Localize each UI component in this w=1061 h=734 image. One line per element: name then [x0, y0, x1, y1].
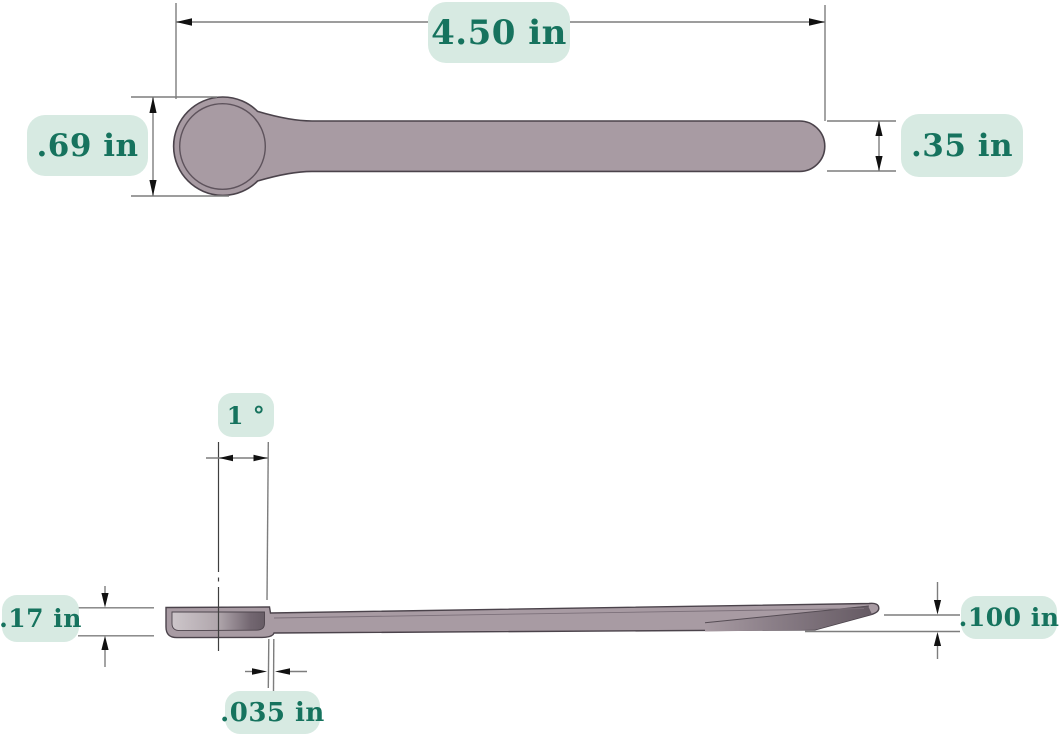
depth-dimension — [78, 586, 154, 667]
drawing-canvas — [0, 0, 1061, 734]
length-arrow-right — [809, 18, 825, 25]
dimension-label-draft-angle: 1 ° — [218, 393, 274, 437]
draft-angle-arrow-right — [254, 455, 268, 462]
side-view — [166, 603, 879, 637]
wall-arrow-right-pointing — [252, 668, 267, 675]
handle-width-arrow-down — [875, 156, 882, 171]
diameter-arrow-up — [149, 97, 156, 113]
drawing-page: 4.50 in .69 in .35 in 1 ° .17 in .035 in… — [0, 0, 1061, 734]
dimension-label-scoop-depth: .17 in — [2, 595, 79, 642]
tip-arrow-down — [934, 600, 941, 615]
depth-arrow-down — [101, 593, 108, 608]
dimension-label-scoop-diameter: .69 in — [27, 115, 148, 176]
draft-angle-arrow-left — [219, 455, 233, 462]
dimension-label-handle-width: .35 in — [901, 114, 1023, 177]
depth-arrow-up — [101, 636, 108, 650]
wall-thickness-dimension — [245, 639, 307, 691]
handle-width-dimension — [827, 121, 896, 171]
length-arrow-left — [176, 18, 192, 25]
handle-width-arrow-up — [875, 121, 882, 136]
wall-ext-line-left — [268, 639, 269, 688]
tip-arrow-up — [934, 632, 941, 646]
diameter-arrow-down — [149, 180, 156, 196]
dimension-label-tip-thickness: .100 in — [961, 596, 1057, 639]
wall-arrow-left-pointing — [275, 668, 290, 675]
top-view — [174, 97, 825, 195]
draft-angle-ext-line — [267, 442, 268, 600]
dimension-label-wall-thickness: .035 in — [225, 691, 320, 734]
dimension-label-overall-length: 4.50 in — [428, 2, 570, 63]
scoop-top-view-outline — [174, 97, 825, 195]
